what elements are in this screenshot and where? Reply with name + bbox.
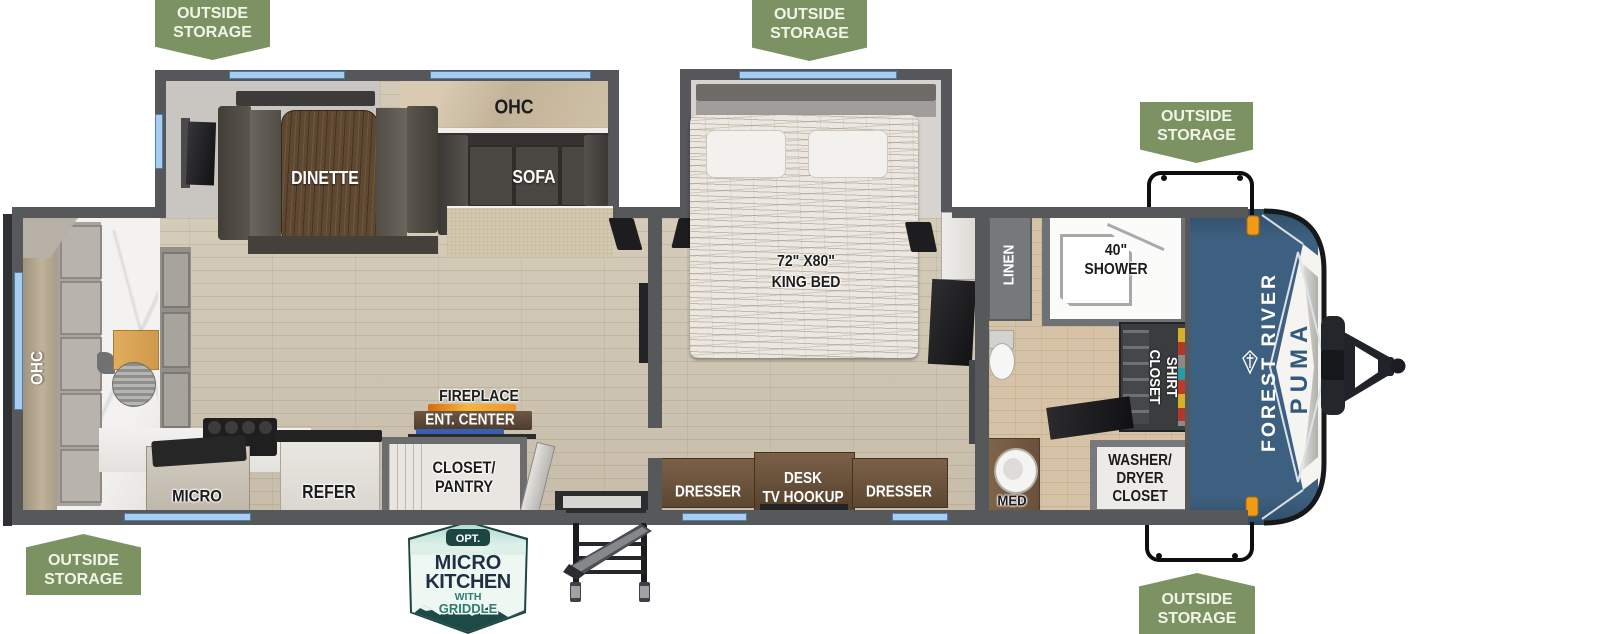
- svg-text:PUMA: PUMA: [1286, 320, 1313, 415]
- svg-text:FOREST RIVER: FOREST RIVER: [1258, 272, 1280, 452]
- svg-text:OPT.: OPT.: [456, 533, 480, 545]
- svg-text:GRIDDLE: GRIDDLE: [439, 601, 498, 616]
- svg-text:KITCHEN: KITCHEN: [425, 571, 510, 593]
